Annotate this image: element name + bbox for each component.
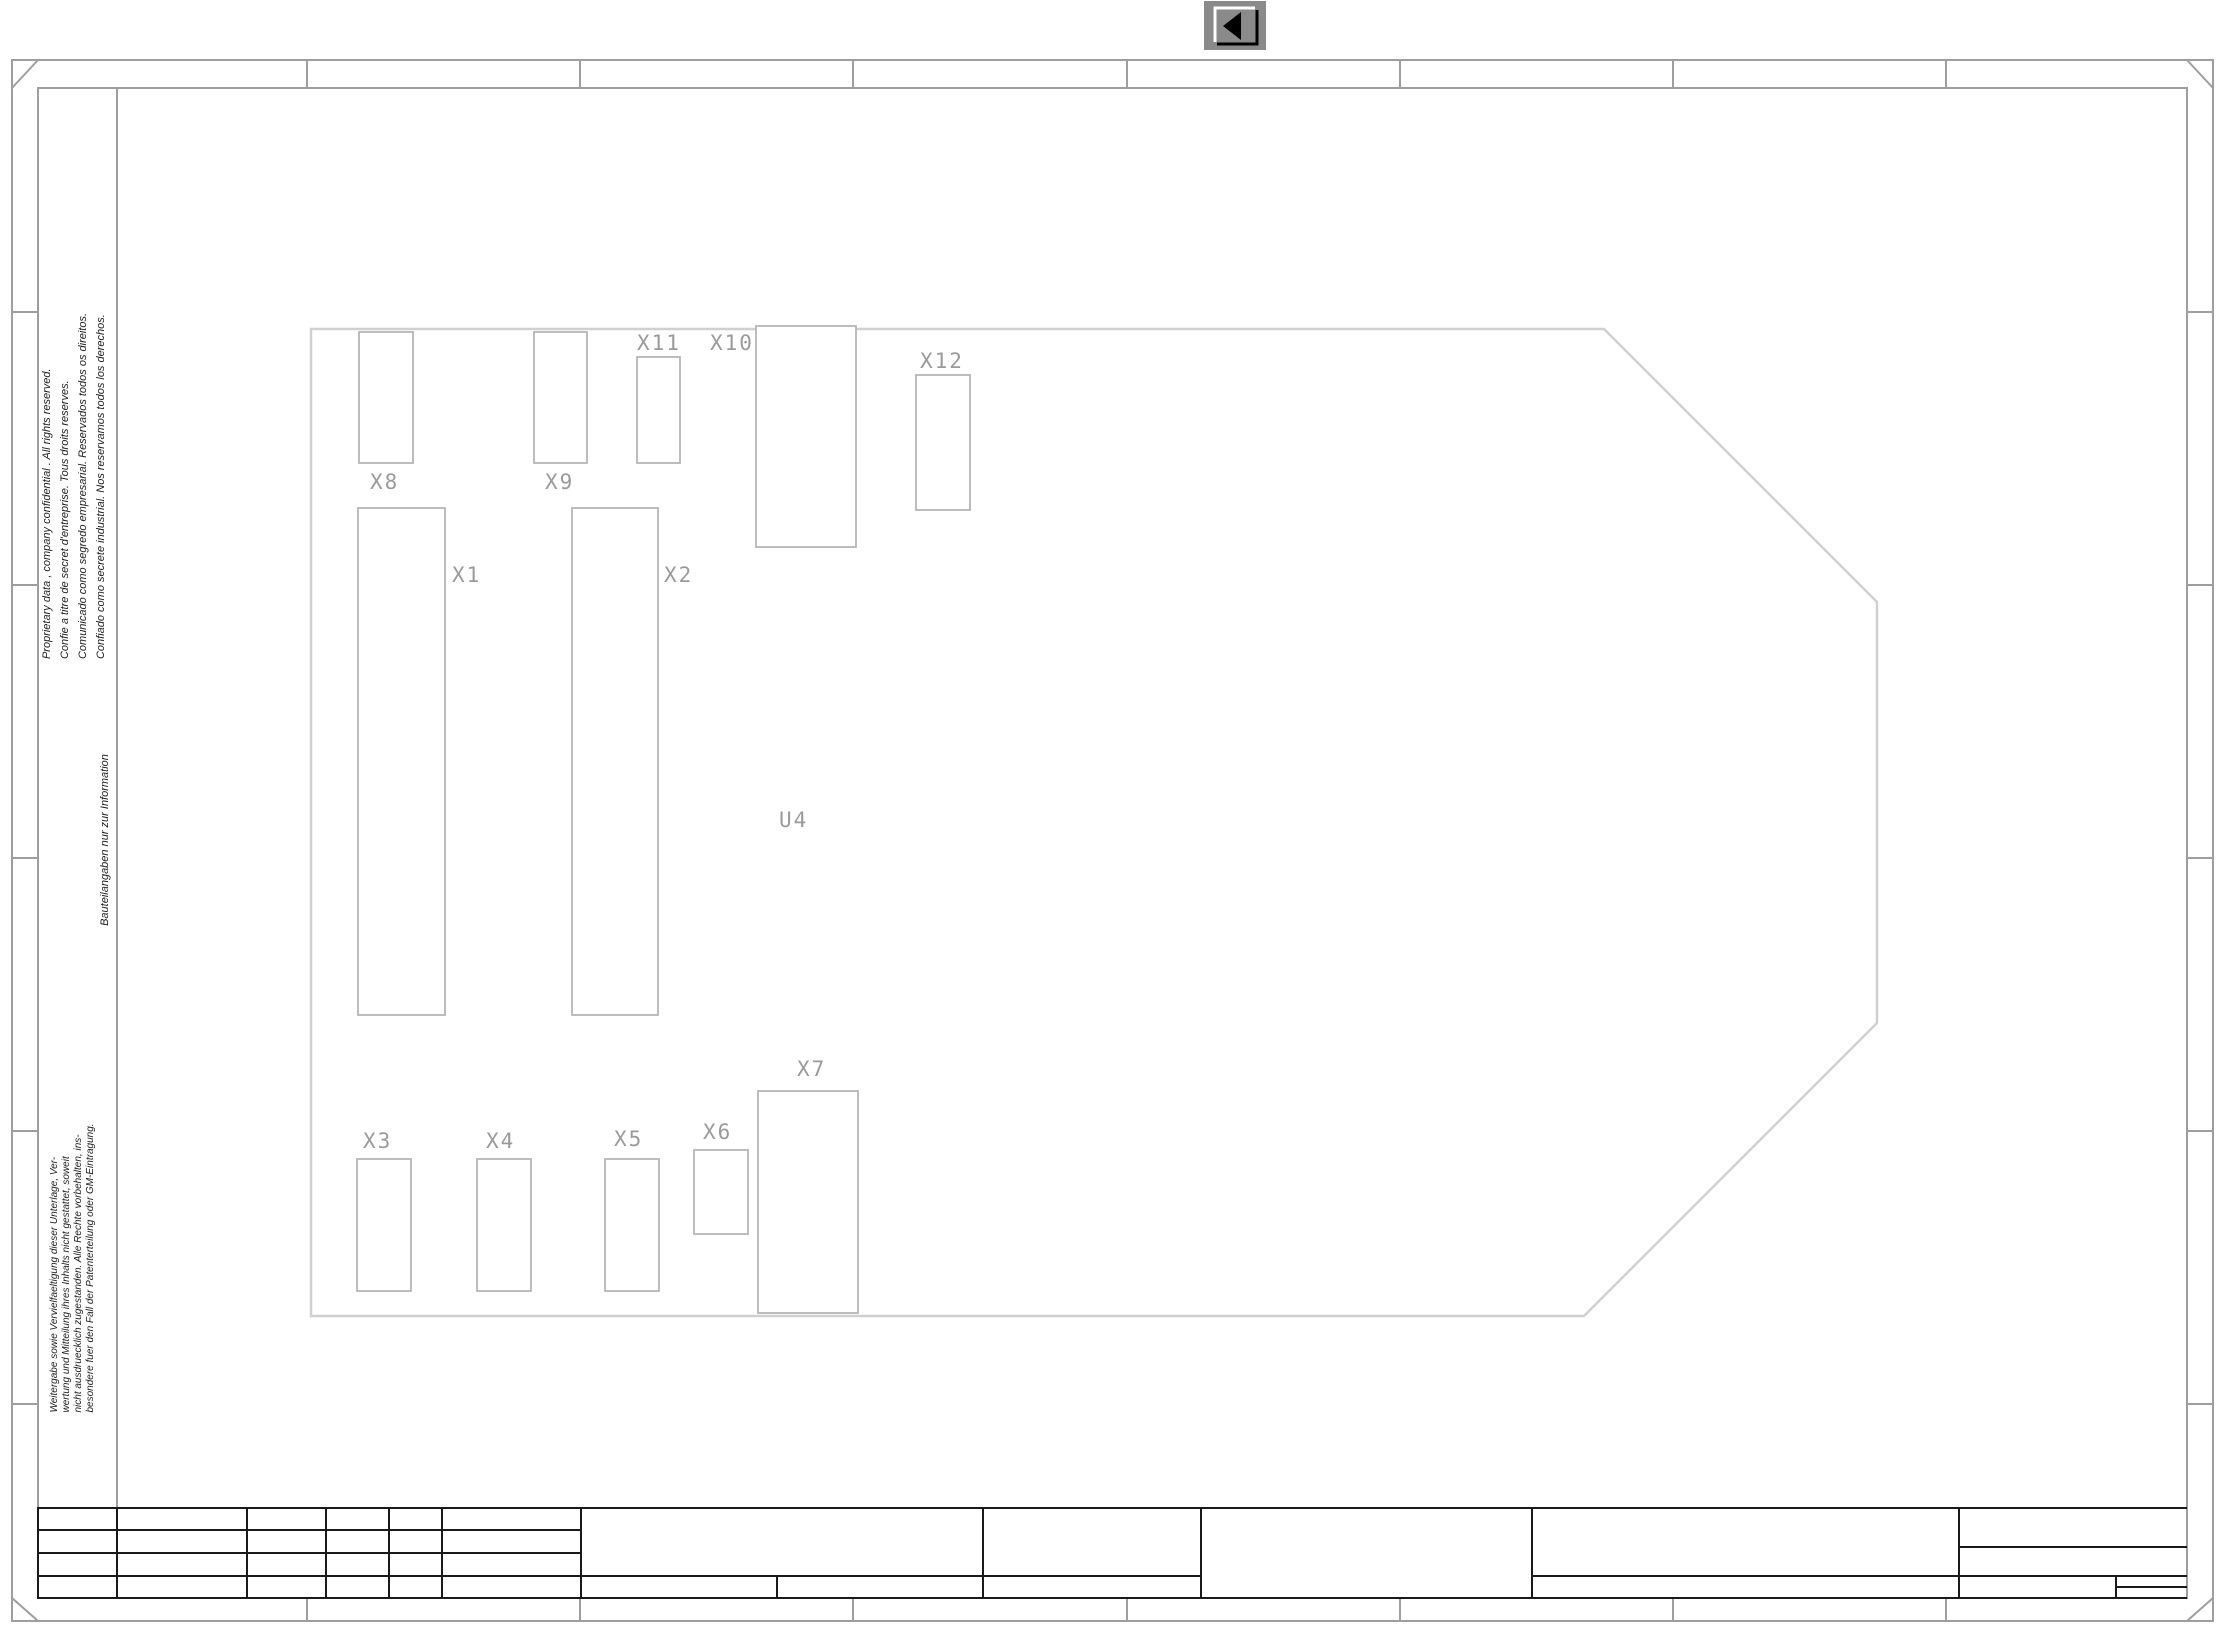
- info-note: Bauteilangaben nur zur Information: [98, 754, 112, 926]
- german-note-line-1: Weitergabe sowie Vervielfaeltigung diese…: [49, 1123, 61, 1412]
- component-label-x5: X5: [614, 1129, 643, 1150]
- component-label-x4: X4: [486, 1131, 515, 1152]
- drawing-page: X8 X9 X11 X10 X12 X1 X2 U4 X3 X4 X5 X6 X…: [0, 0, 2223, 1626]
- component-label-x12: X12: [920, 351, 964, 372]
- component-x11-outline: [637, 357, 680, 463]
- title-block: [38, 1508, 2187, 1598]
- corner-bevel-bottom-right: [2187, 1598, 2213, 1621]
- outer-border: [12, 60, 2213, 1621]
- component-x10-outline: [756, 326, 856, 547]
- component-x5-outline: [605, 1159, 659, 1291]
- proprietary-note: Proprietary data , company confidential …: [38, 313, 110, 659]
- component-x3-outline: [357, 1159, 411, 1291]
- corner-bevel-top-right: [2187, 60, 2213, 88]
- component-label-x8: X8: [370, 472, 399, 493]
- component-x1-outline: [358, 508, 445, 1015]
- corner-bevel-bottom-left: [12, 1598, 38, 1621]
- german-note-line-2: wertung und Mitteilung ihres Inhalts nic…: [61, 1123, 73, 1412]
- component-label-x2: X2: [664, 565, 693, 586]
- proprietary-note-line-1: Proprietary data , company confidential …: [38, 313, 56, 659]
- component-x9-outline: [534, 332, 587, 463]
- german-note-line-3: nicht ausdruecklich zugestanden. Alle Re…: [73, 1123, 85, 1412]
- right-zone-ticks: [2187, 312, 2213, 1404]
- component-label-x9: X9: [545, 472, 574, 493]
- component-x12-outline: [916, 375, 970, 510]
- component-label-x10: X10: [710, 333, 754, 354]
- component-label-x11: X11: [637, 333, 681, 354]
- german-note-line-4: besondere fuer den Fall der Patenterteil…: [85, 1123, 97, 1412]
- component-x8-outline: [359, 332, 413, 463]
- component-x6-outline: [694, 1150, 748, 1234]
- corner-bevel-top-left: [12, 60, 38, 88]
- german-copyright-note: Weitergabe sowie Vervielfaeltigung diese…: [49, 1123, 97, 1412]
- revision-table: [38, 1508, 581, 1598]
- component-x7-outline: [758, 1091, 858, 1313]
- component-label-x6: X6: [703, 1122, 732, 1143]
- zone-ticks: [12, 60, 2213, 1621]
- component-label-x1: X1: [452, 565, 481, 586]
- component-label-x3: X3: [363, 1131, 392, 1152]
- drawing-canvas: [0, 0, 2223, 1626]
- sheet-frame: [12, 60, 2213, 1621]
- component-x2-outline: [572, 508, 658, 1015]
- bottom-zone-ticks: [307, 1598, 1946, 1621]
- component-x4-outline: [477, 1159, 531, 1291]
- component-outlines: [357, 326, 970, 1313]
- component-label-u4: U4: [779, 810, 808, 831]
- proprietary-note-line-3: Comunicado como segredo empresarial. Res…: [74, 313, 92, 659]
- title-block-right: [1532, 1508, 2187, 1598]
- proprietary-note-line-4: Confiado como secrete industrial. Nos re…: [92, 313, 110, 659]
- top-zone-ticks: [307, 60, 1946, 88]
- proprietary-note-line-2: Confie a titre de secret d'entreprise. T…: [56, 313, 74, 659]
- left-zone-ticks: [12, 312, 38, 1404]
- component-label-x7: X7: [797, 1059, 826, 1080]
